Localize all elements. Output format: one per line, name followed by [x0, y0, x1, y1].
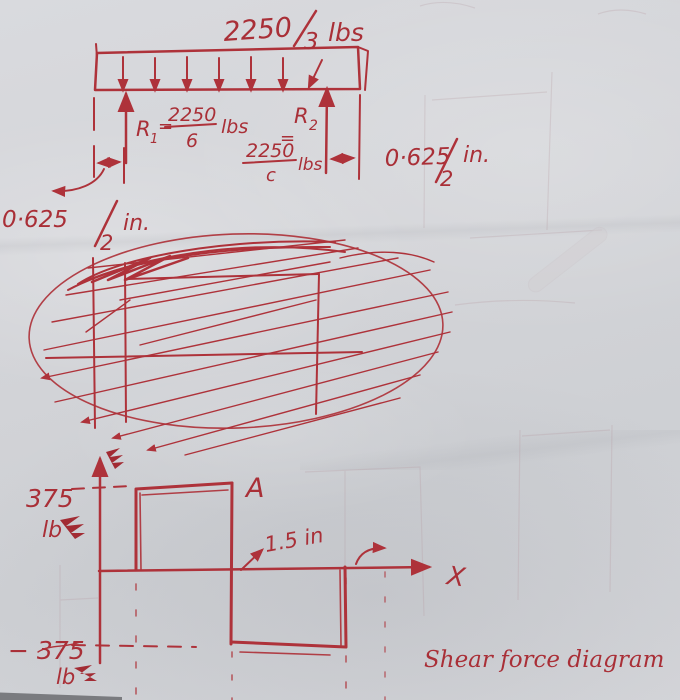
dim-left-numerator: 0·625	[2, 207, 68, 233]
hatch-lines	[42, 240, 452, 455]
axis-label-scribble-blob	[106, 448, 124, 469]
r2-unit: lbs	[298, 155, 323, 175]
return-to-zero-arrow	[356, 548, 384, 564]
point-a-label: A	[244, 473, 264, 504]
r2-numerator: 2250	[246, 140, 294, 162]
pos-unit-scribble-blob	[60, 516, 85, 539]
dim-left-unit: in.	[123, 211, 150, 236]
load-denominator: 3	[304, 29, 319, 55]
pos-shear-unit: lb	[42, 518, 62, 543]
dim-right-unit: in.	[463, 143, 490, 168]
shear-x-axis	[99, 567, 429, 571]
beam-outline	[95, 47, 360, 90]
neg-shear-value: − 375	[8, 636, 85, 665]
ink-bleed-ghost-marks	[60, 2, 646, 688]
dim-right-denominator: 2	[440, 167, 453, 191]
load-numerator: 2250	[222, 12, 293, 48]
distributed-load-arrows	[123, 57, 322, 90]
beam-left-tick	[96, 44, 97, 57]
shear-diagram-caption: Shear force diagram	[424, 647, 664, 673]
r1-denominator: 6	[186, 130, 198, 152]
reaction-r2-arrow	[326, 89, 327, 173]
beam-load-diagram: 2250 3 lbs R 1 = 2250 6 lbs R 2 = 2250	[2, 11, 490, 255]
r2-denominator: c	[266, 165, 276, 186]
crossing-pointer-arrow	[241, 550, 262, 570]
section-ellipse-outline	[26, 227, 447, 435]
x-axis-label: X	[443, 561, 468, 594]
cross-section-sketch	[26, 227, 452, 455]
pos-shear-value: 375	[26, 484, 74, 513]
right-end-dimension	[332, 95, 360, 179]
notebook-page: 2250 3 lbs R 1 = 2250 6 lbs R 2 = 2250	[0, 0, 680, 700]
r1-symbol: R	[136, 117, 151, 141]
shear-force-diagram: 375 lb − 375 lb A 1.5 in X Shear force d…	[8, 448, 664, 700]
r2-subscript: 2	[309, 118, 318, 134]
curved-pointer-arrow	[54, 169, 104, 191]
left-end-dimension	[54, 98, 124, 191]
crossing-label: 1.5 in	[263, 523, 325, 557]
neg-unit-scribble-blob	[74, 665, 97, 681]
r1-equation: R 1 = 2250 6 lbs	[136, 104, 248, 152]
r2-equation: R 2 = 2250 c lbs	[243, 104, 323, 186]
load-unit: lbs	[328, 18, 364, 47]
neg-shear-unit: lb	[56, 665, 75, 689]
r1-numerator: 2250	[168, 104, 216, 126]
r1-unit: lbs	[221, 116, 248, 138]
sketch-svg: 2250 3 lbs R 1 = 2250 6 lbs R 2 = 2250	[0, 0, 680, 700]
dashed-guides	[72, 486, 385, 700]
dim-left-denominator: 2	[100, 231, 113, 255]
left-dimension-label: 0·625 2 in.	[2, 201, 150, 255]
r2-symbol: R	[294, 104, 309, 128]
right-dimension-label: 0·625 2 in.	[384, 139, 490, 191]
ghost-pen-smudge	[525, 224, 610, 295]
